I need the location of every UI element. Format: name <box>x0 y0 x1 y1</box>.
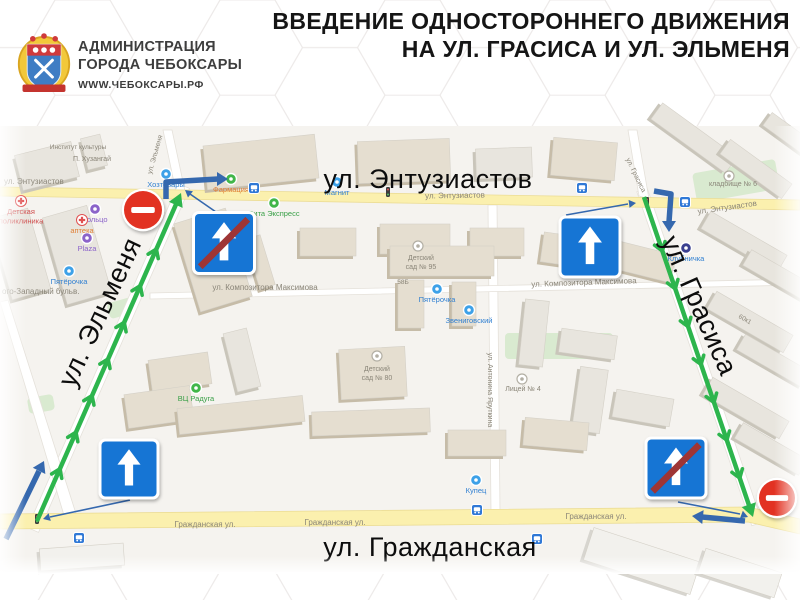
poi-marker <box>372 351 382 361</box>
poi-marker <box>724 171 734 181</box>
poi-marker <box>517 374 527 384</box>
org-website: WWW.ЧЕБОКСАРЫ.РФ <box>78 79 242 91</box>
bus-stop-icon <box>577 183 588 194</box>
map-fade-bottom <box>0 556 800 574</box>
street-label: Гражданская ул. <box>565 512 626 521</box>
sign-one-way-end <box>645 437 708 500</box>
street-label: Гражданская ул. <box>304 518 365 527</box>
sign-no-entry <box>122 189 164 231</box>
street-label: сад № 80 <box>362 375 393 382</box>
street-label: Пятёрочка <box>51 277 89 286</box>
building <box>445 430 506 459</box>
map-fade-left <box>0 126 26 572</box>
one-way-arrow-shaft <box>586 241 595 264</box>
street-label: сад № 95 <box>406 264 437 271</box>
cheboksary-coat-of-arms <box>16 32 72 96</box>
street-label: Plaza <box>78 244 98 253</box>
building <box>387 246 494 279</box>
street-label: П. Хузангай <box>73 155 111 163</box>
slide-title: ВВЕДЕНИЕ ОДНОСТОРОННЕГО ДВИЖЕНИЯ НА УЛ. … <box>190 8 790 63</box>
slide-header: АДМИНИСТРАЦИЯ ГОРОДА ЧЕБОКСАРЫ WWW.ЧЕБОК… <box>0 0 800 128</box>
sign-one-way-end <box>192 211 256 275</box>
bus-stop-icon <box>74 533 85 544</box>
bus-stop-icon <box>472 505 483 516</box>
street-label: Вита Экспресс <box>248 209 299 218</box>
building <box>395 280 424 331</box>
street-label: Звениговский <box>446 316 493 325</box>
street-label: ул. Композитора Максимова <box>212 283 318 292</box>
building <box>547 137 617 184</box>
title-line1: ВВЕДЕНИЕ ОДНОСТОРОННЕГО ДВИЖЕНИЯ <box>190 8 790 36</box>
sign-one-way <box>559 216 622 279</box>
building <box>520 417 589 454</box>
one-way-arrow-shaft <box>125 464 133 486</box>
street-label: ул. Антонина Яруткина <box>486 353 493 428</box>
title-line2: НА УЛ. ГРАСИСА И УЛ. ЭЛЬМЕНЯ <box>190 36 790 64</box>
street-label: аптека <box>70 226 94 235</box>
street-label: Детский <box>364 365 390 373</box>
sign-one-way <box>99 439 160 500</box>
street-label: Гражданская ул. <box>174 520 235 529</box>
street-label: ВЦ Радуга <box>178 394 215 403</box>
street-label: Лицей № 4 <box>505 385 541 393</box>
street-name-overlay: ул. Энтузиастов <box>323 164 532 194</box>
street-label: 58Б <box>397 279 409 286</box>
building <box>309 408 431 439</box>
street-label: Пятёрочка <box>419 295 457 304</box>
street-label: Детский <box>408 254 434 262</box>
slide: ул. Энтузиастовул. Энтузиастовул. Энтузи… <box>0 0 800 600</box>
map-fade-right <box>774 126 800 572</box>
street-label: Институт культуры <box>50 144 107 151</box>
street-label: Купец <box>466 486 487 495</box>
street-label: Фармация <box>213 185 249 194</box>
bus-stop-icon <box>680 197 691 208</box>
bus-stop-icon <box>249 183 260 194</box>
poi-marker <box>413 241 423 251</box>
building <box>297 228 356 259</box>
street-label: кладбище № 6 <box>709 180 757 188</box>
